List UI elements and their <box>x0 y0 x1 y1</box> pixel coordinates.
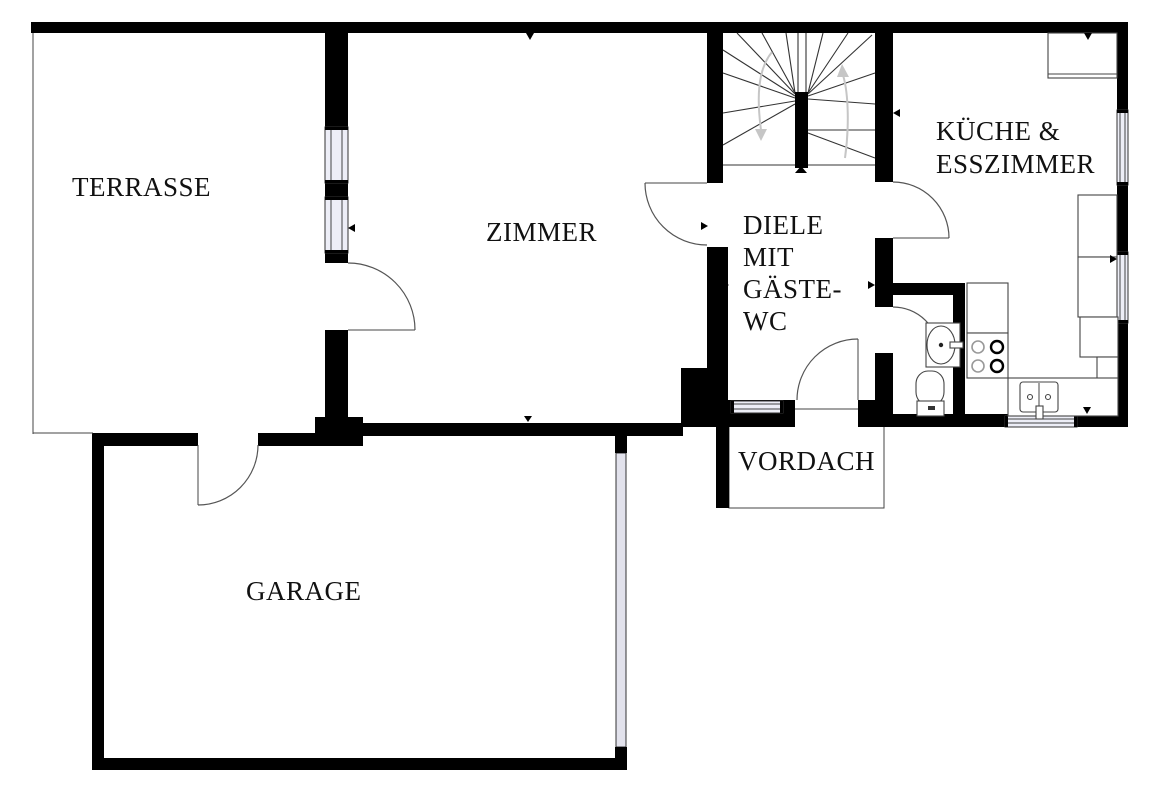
wall-vordach-left <box>716 427 729 508</box>
counter-wc-side <box>967 283 1008 333</box>
window-terrasse-2 <box>325 197 348 253</box>
counter-east <box>1078 195 1118 380</box>
terrasse-boundary <box>33 33 93 434</box>
wc-sink <box>926 323 963 367</box>
wall-garage-left <box>92 433 104 770</box>
door-terrasse <box>348 263 415 330</box>
label-diele-line4: WC <box>743 306 788 336</box>
floorplan-drawing: TERRASSE ZIMMER DIELE MIT GÄSTE- WC KÜCH… <box>0 0 1154 800</box>
stair-newel <box>795 92 808 168</box>
counter-top-right <box>1048 33 1117 78</box>
wall-top <box>31 22 1128 33</box>
stair-arrow-up <box>843 75 848 158</box>
label-vordach: VORDACH <box>738 446 875 476</box>
wall-garage-bottom <box>92 758 627 770</box>
label-garage: GARAGE <box>246 576 362 606</box>
label-zimmer: ZIMMER <box>486 217 597 247</box>
toilet <box>916 371 944 416</box>
window-terrasse-1 <box>325 127 348 183</box>
door-zimmer <box>645 183 707 245</box>
garage-door <box>615 446 627 754</box>
window-diele <box>731 401 783 413</box>
staircase <box>723 33 875 173</box>
label-diele-line1: DIELE <box>743 210 823 240</box>
stove <box>967 333 1008 378</box>
kitchen-fixtures <box>967 33 1118 419</box>
wall-wc-top <box>893 283 965 295</box>
wall-zimmer-bottom <box>347 423 683 436</box>
label-terrasse: TERRASSE <box>72 172 211 202</box>
door-kueche <box>893 182 949 238</box>
floorplan: TERRASSE ZIMMER DIELE MIT GÄSTE- WC KÜCH… <box>0 0 1154 800</box>
door-entrance <box>797 339 858 400</box>
door-garage <box>198 445 258 505</box>
label-kueche-line1: KÜCHE & <box>936 116 1060 146</box>
label-diele-line3: GÄSTE- <box>743 274 842 304</box>
window-kueche-east-2 <box>1117 252 1128 323</box>
label-diele-line2: MIT <box>743 242 794 272</box>
label-kueche-line2: ESSZIMMER <box>936 149 1095 179</box>
window-kueche-east-1 <box>1117 110 1128 185</box>
